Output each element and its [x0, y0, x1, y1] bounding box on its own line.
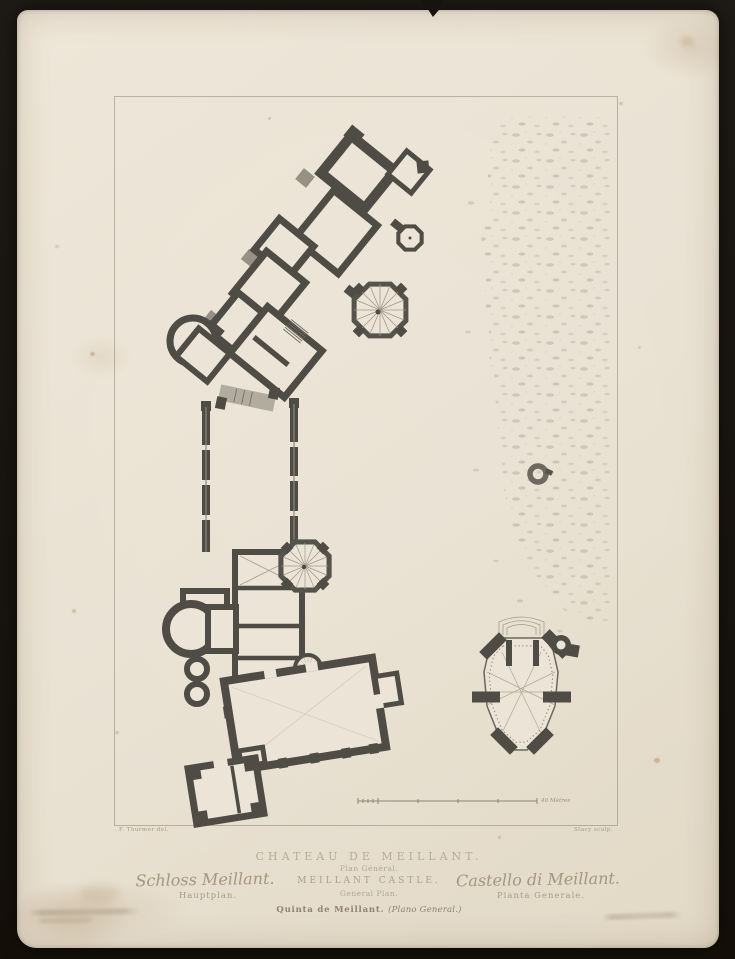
turret-lobe [187, 659, 207, 679]
chapel-steps [499, 617, 544, 635]
stray-tuft [517, 599, 524, 602]
stray-tuft [468, 201, 475, 204]
scale-bar [358, 798, 537, 804]
scanned-print: F. Thurmer del. Stacy sculp. 40 Mètres C… [0, 0, 735, 959]
vestibule-wall [506, 640, 512, 666]
castle-south-wing [166, 542, 409, 824]
stray-tuft [557, 630, 563, 633]
scale-label: 40 Mètres [541, 797, 570, 803]
stray-tuft [493, 560, 499, 563]
vestibule-wall [533, 640, 539, 666]
caption-german-title: Schloss Meillant. [135, 869, 274, 890]
caption-italian-subtitle: Pianta Generale. [497, 891, 585, 901]
turret-lobe [187, 684, 207, 704]
delineator-credit: F. Thurmer del. [119, 826, 169, 832]
garden-stipple-field [465, 117, 612, 633]
stray-tuft [465, 331, 471, 334]
castle-north-wing [170, 125, 430, 412]
caption-italian-title: Castello di Meillant. [456, 869, 620, 891]
stray-tuft [473, 469, 479, 472]
caption-spanish-paren: (Plano General.) [388, 905, 462, 915]
corner-pavilion [187, 754, 264, 824]
faint-inscription-left [28, 908, 140, 924]
caption-spanish-main: Quinta de Meillant. [276, 905, 384, 915]
castle-plan-engraving [0, 0, 735, 959]
caption-german-subtitle: Hauptplan. [179, 891, 237, 901]
caption-french-title: CHATEAU DE MEILLANT. [256, 850, 483, 863]
caption-french-subtitle: Plan Général. [340, 864, 398, 873]
caption-english-title: MEILLANT CASTLE. [297, 876, 441, 886]
entrance-porch [218, 384, 276, 411]
engraver-credit: Stacy sculp. [574, 826, 613, 832]
caption-spanish-title: Quinta de Meillant. (Plano General.) [276, 905, 461, 915]
chapel-plan [472, 617, 580, 755]
caption-english-subtitle: General Plan. [340, 889, 398, 898]
courtyard-walls [201, 398, 299, 552]
